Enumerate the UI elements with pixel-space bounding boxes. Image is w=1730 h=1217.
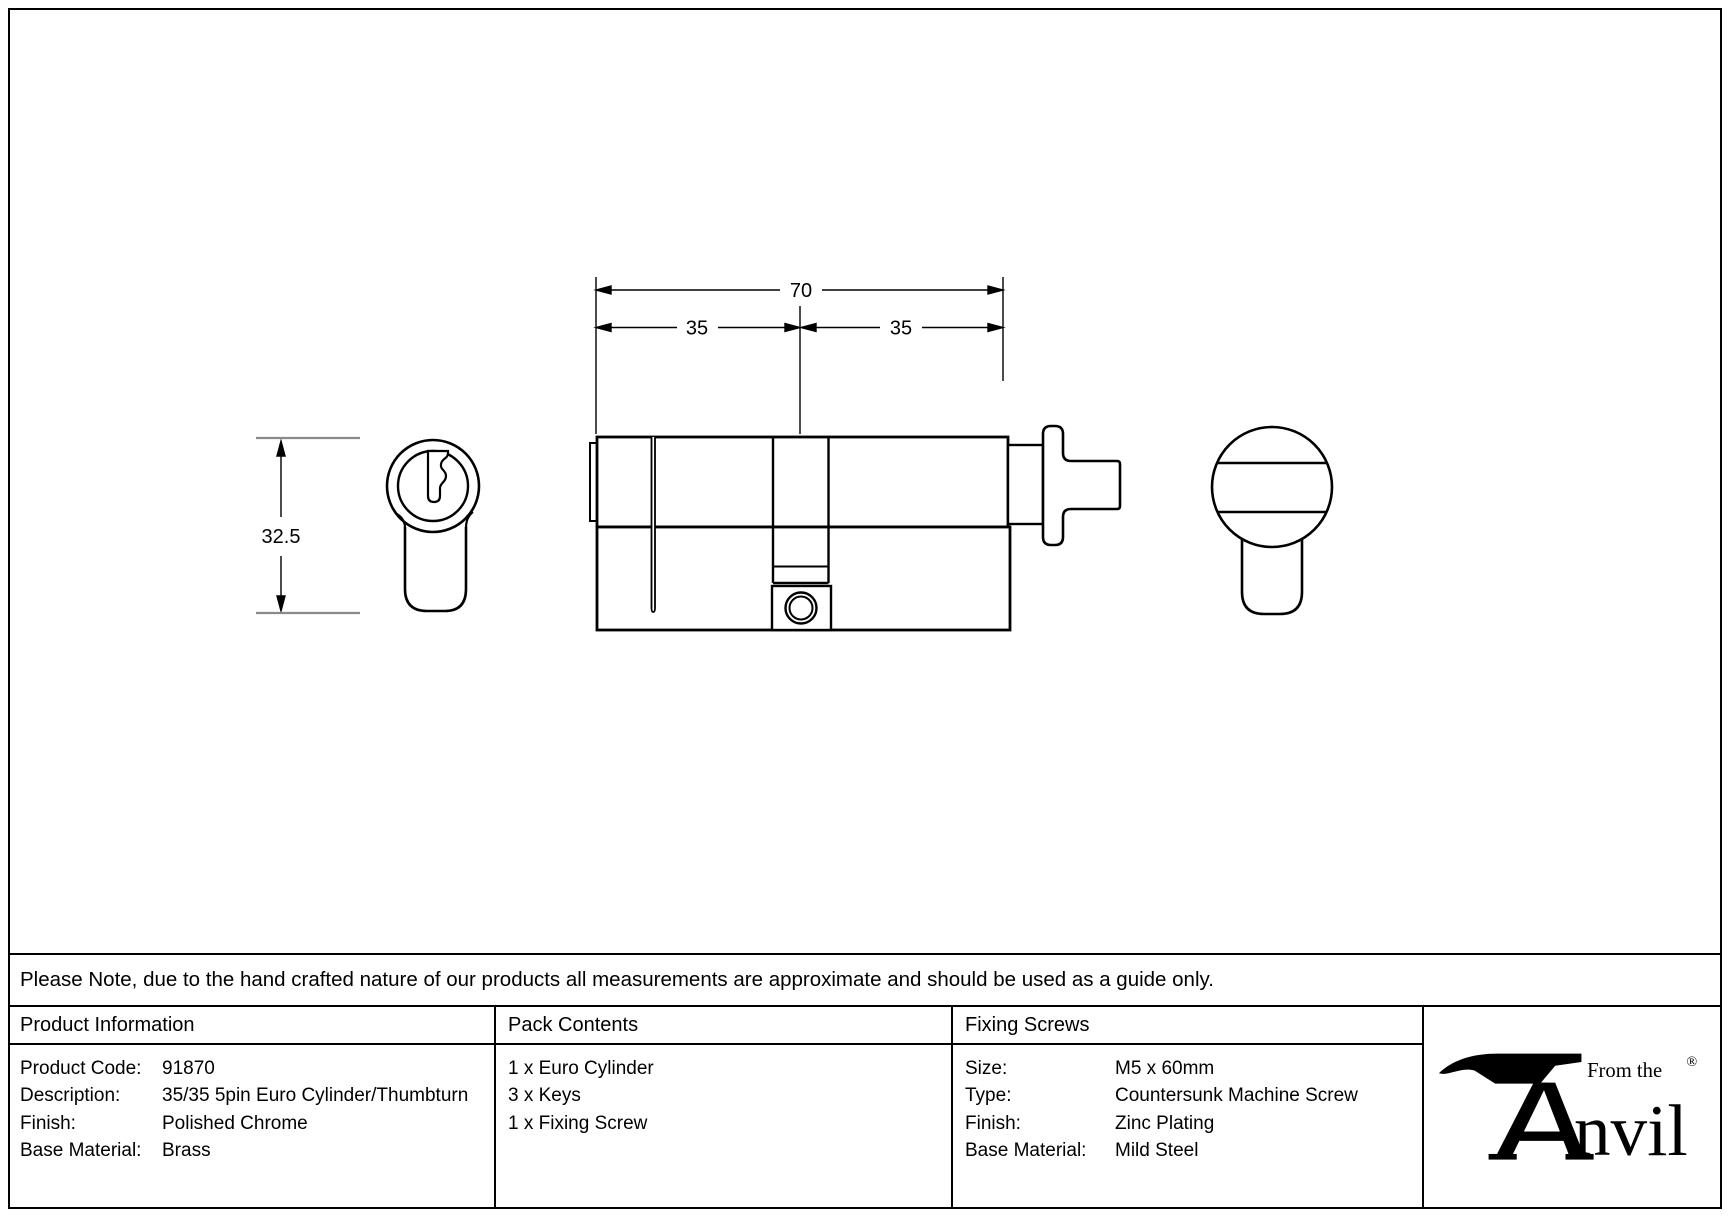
cylinder-barrel: [597, 437, 1008, 527]
pack-contents-body: 1 x Euro Cylinder 3 x Keys 1 x Fixing Sc…: [496, 1045, 951, 1138]
list-item: 3 x Keys: [508, 1083, 951, 1111]
fixing-screws-body: Size: M5 x 60mm Type: Countersunk Machin…: [953, 1045, 1422, 1165]
dim-label-32-5: 32.5: [262, 526, 301, 548]
fixing-screw-hole-inner: [790, 597, 813, 620]
row-label: Type:: [965, 1085, 1115, 1107]
fixing-screws-header: Fixing Screws: [953, 1007, 1422, 1045]
table-row: Type: Countersunk Machine Screw: [965, 1083, 1422, 1111]
brand-logo-cell: From the nvil ®: [1424, 1007, 1722, 1209]
row-label: Finish:: [965, 1113, 1115, 1135]
row-value: 35/35 5pin Euro Cylinder/Thumbturn: [162, 1085, 468, 1107]
row-label: Product Code:: [20, 1058, 162, 1080]
row-value: Countersunk Machine Screw: [1115, 1085, 1358, 1107]
registered-trademark-symbol: ®: [1686, 1054, 1697, 1070]
row-value: Zinc Plating: [1115, 1113, 1214, 1135]
table-row: Description: 35/35 5pin Euro Cylinder/Th…: [20, 1083, 494, 1111]
pack-contents-header: Pack Contents: [496, 1007, 951, 1045]
row-label: Finish:: [20, 1113, 162, 1135]
row-label: Base Material:: [20, 1140, 162, 1162]
thumbturn-side-view: [1043, 426, 1120, 545]
row-value: Polished Chrome: [162, 1113, 308, 1135]
thumbturn-face-circle: [1212, 427, 1332, 547]
logo-tagline: From the: [1587, 1060, 1662, 1082]
table-row: Base Material: Brass: [20, 1138, 494, 1166]
row-value: Brass: [162, 1140, 211, 1162]
thumbturn-body: [1242, 538, 1302, 614]
row-label: Size:: [965, 1058, 1115, 1080]
fixing-screws-column: Fixing Screws Size: M5 x 60mm Type: Coun…: [953, 1007, 1424, 1209]
disclaimer-text: Please Note, due to the hand crafted nat…: [8, 968, 1214, 992]
thumbturn-profile: [1043, 426, 1120, 545]
row-label: Base Material:: [965, 1140, 1115, 1162]
pack-contents-column: Pack Contents 1 x Euro Cylinder 3 x Keys…: [496, 1007, 953, 1209]
table-row: Base Material: Mild Steel: [965, 1138, 1422, 1166]
thumbturn-end-view: [1212, 427, 1332, 614]
body-join-slot: [652, 437, 656, 612]
euro-profile-end-view: [387, 440, 479, 611]
list-item: 1 x Fixing Screw: [508, 1110, 951, 1138]
anvil-icon: [1439, 1054, 1594, 1160]
spec-table: Product Information Product Code: 91870 …: [8, 1005, 1722, 1209]
row-value: M5 x 60mm: [1115, 1058, 1214, 1080]
table-row: Finish: Zinc Plating: [965, 1110, 1422, 1138]
dim-label-35-right: 35: [890, 318, 912, 340]
row-label: Description:: [20, 1085, 162, 1107]
dim-label-35-left: 35: [686, 318, 708, 340]
cylinder-side-view: [590, 437, 1043, 630]
row-value: 91870: [162, 1058, 215, 1080]
table-row: Finish: Polished Chrome: [20, 1110, 494, 1138]
cylinder-right-cap: [1008, 445, 1043, 524]
table-row: Size: M5 x 60mm: [965, 1055, 1422, 1083]
logo-brand-text: nvil: [1574, 1090, 1688, 1168]
list-item: 1 x Euro Cylinder: [508, 1055, 951, 1083]
profile-body: [405, 527, 466, 611]
product-information-column: Product Information Product Code: 91870 …: [8, 1007, 496, 1209]
product-information-header: Product Information: [8, 1007, 494, 1045]
product-datasheet: 70 35 35 32.5: [0, 0, 1730, 1217]
disclaimer-band: Please Note, due to the hand crafted nat…: [8, 953, 1722, 1005]
from-the-anvil-logo: From the nvil ®: [1437, 1048, 1709, 1168]
product-information-body: Product Code: 91870 Description: 35/35 5…: [8, 1045, 494, 1165]
table-row: Product Code: 91870: [20, 1055, 494, 1083]
dim-label-70: 70: [790, 280, 812, 302]
row-value: Mild Steel: [1115, 1140, 1198, 1162]
